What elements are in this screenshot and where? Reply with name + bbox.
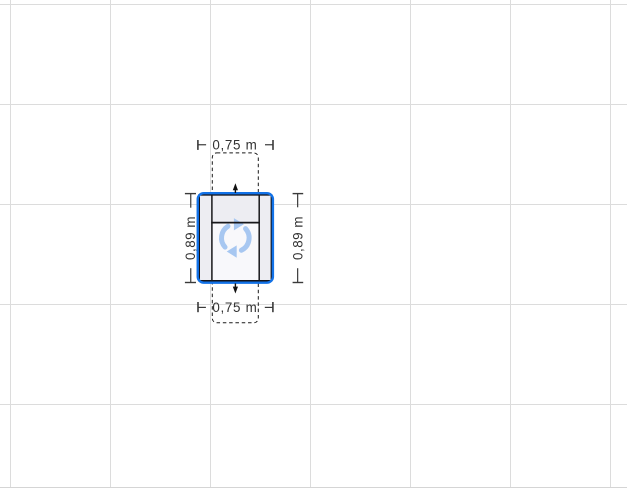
svg-text:0,75 m: 0,75 m [212, 137, 257, 152]
svg-text:0,89 m: 0,89 m [290, 216, 305, 260]
svg-text:0,75 m: 0,75 m [212, 300, 257, 315]
svg-text:0,89 m: 0,89 m [183, 216, 198, 260]
